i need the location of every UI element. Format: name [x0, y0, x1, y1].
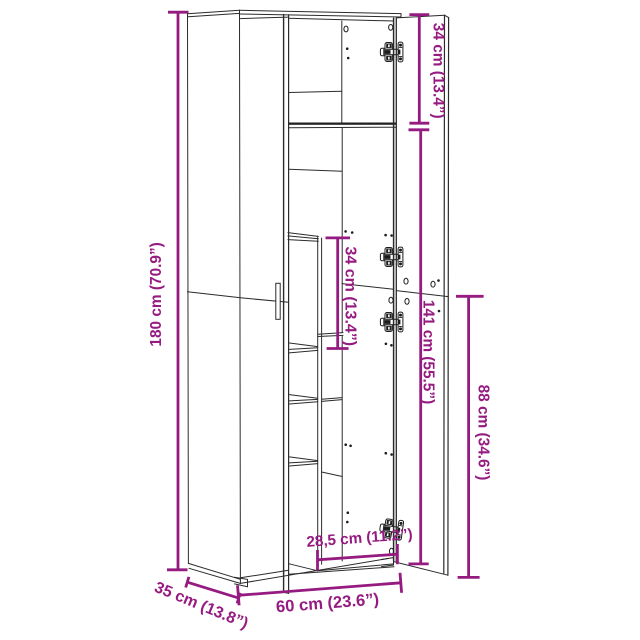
svg-text:34 cm (13.4”): 34 cm (13.4”): [342, 246, 359, 346]
svg-text:88 cm (34.6”): 88 cm (34.6”): [475, 385, 492, 481]
svg-text:34 cm (13.4”): 34 cm (13.4”): [429, 23, 446, 119]
svg-text:180 cm (70.9”): 180 cm (70.9”): [148, 242, 165, 346]
svg-text:141 cm (55.5”): 141 cm (55.5”): [420, 300, 437, 404]
